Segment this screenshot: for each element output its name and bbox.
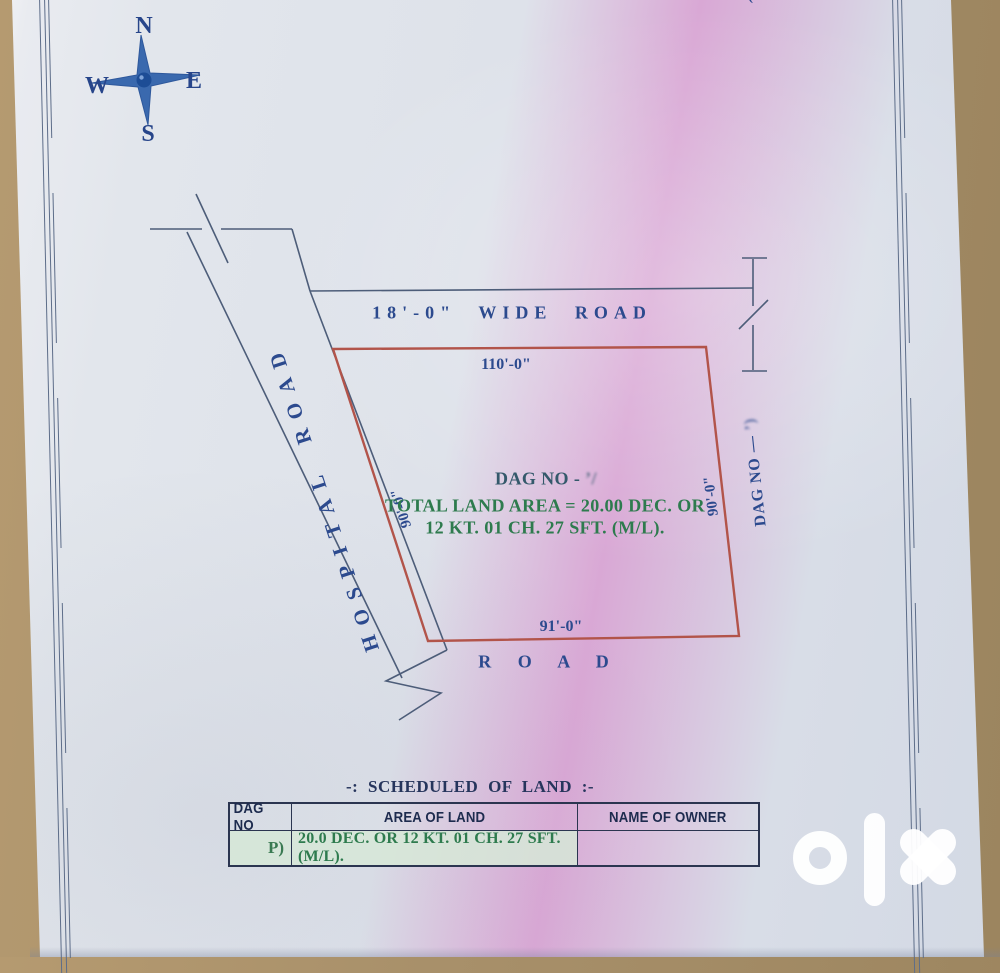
scanned-land-plan: (—————— ——— — —) N W E S [0,0,1000,957]
plot-area-line2: 12 KT. 01 CH. 27 SFT. (M/L). [425,518,665,539]
header-dag-no: DAG NO [230,804,292,830]
schedule-title: -: SCHEDULED OF LAND :- [346,777,594,797]
schedule-data-row: P) 20.0 DEC. OR 12 KT. 01 CH. 27 SFT. (M… [230,831,758,865]
header-area-of-land: AREA OF LAND [292,804,578,830]
plot-top-dimension: 110'-0" [481,356,531,374]
plot-area-line1: TOTAL LAND AREA = 20.00 DEC. OR [385,496,705,517]
bottom-road-label: R O A D [478,652,620,673]
cell-area-of-land: 20.0 DEC. OR 12 KT. 01 CH. 27 SFT. (M/L)… [292,831,578,865]
cell-name-of-owner [578,831,758,865]
wide-road-label: 18'-0" WIDE ROAD [372,303,652,324]
plot-dag-no-label: DAG NO - [495,469,585,489]
plot-bottom-dimension: 91'-0" [540,618,583,636]
plot-dag-no-redacted: ’/ [585,469,597,489]
olx-logo [780,800,980,920]
schedule-header-row: DAG NO AREA OF LAND NAME OF OWNER [230,804,758,831]
plot-dag-no: DAG NO - ’/ [495,469,597,490]
header-name-of-owner: NAME OF OWNER [578,804,758,830]
right-dag-no-redacted: ’) [741,417,759,431]
schedule-table: DAG NO AREA OF LAND NAME OF OWNER P) 20.… [228,802,760,867]
cell-dag-no: P) [230,831,292,865]
